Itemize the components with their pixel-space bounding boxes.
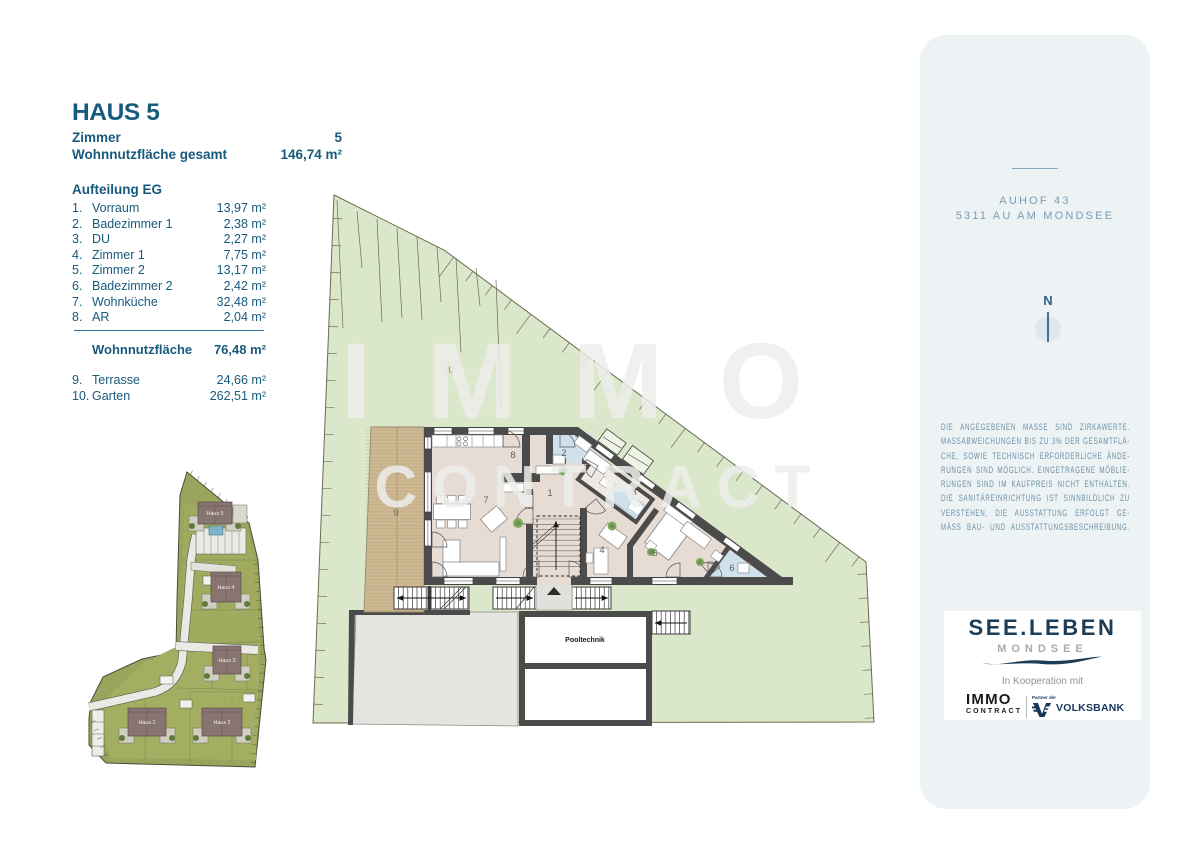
svg-text:Pooltechnik: Pooltechnik	[565, 637, 605, 644]
svg-text:Haus 2: Haus 2	[213, 720, 230, 726]
svg-text:4: 4	[599, 545, 604, 556]
svg-text:Haus 5: Haus 5	[206, 511, 223, 517]
svg-text:5: 5	[652, 548, 657, 559]
svg-text:Haus 4: Haus 4	[217, 585, 234, 591]
svg-text:CONTRACT: CONTRACT	[374, 454, 825, 520]
svg-text:6: 6	[729, 563, 734, 574]
svg-text:IMMO: IMMO	[341, 320, 859, 441]
svg-text:Haus 3: Haus 3	[218, 658, 235, 664]
svg-text:Haus 1: Haus 1	[138, 720, 155, 726]
